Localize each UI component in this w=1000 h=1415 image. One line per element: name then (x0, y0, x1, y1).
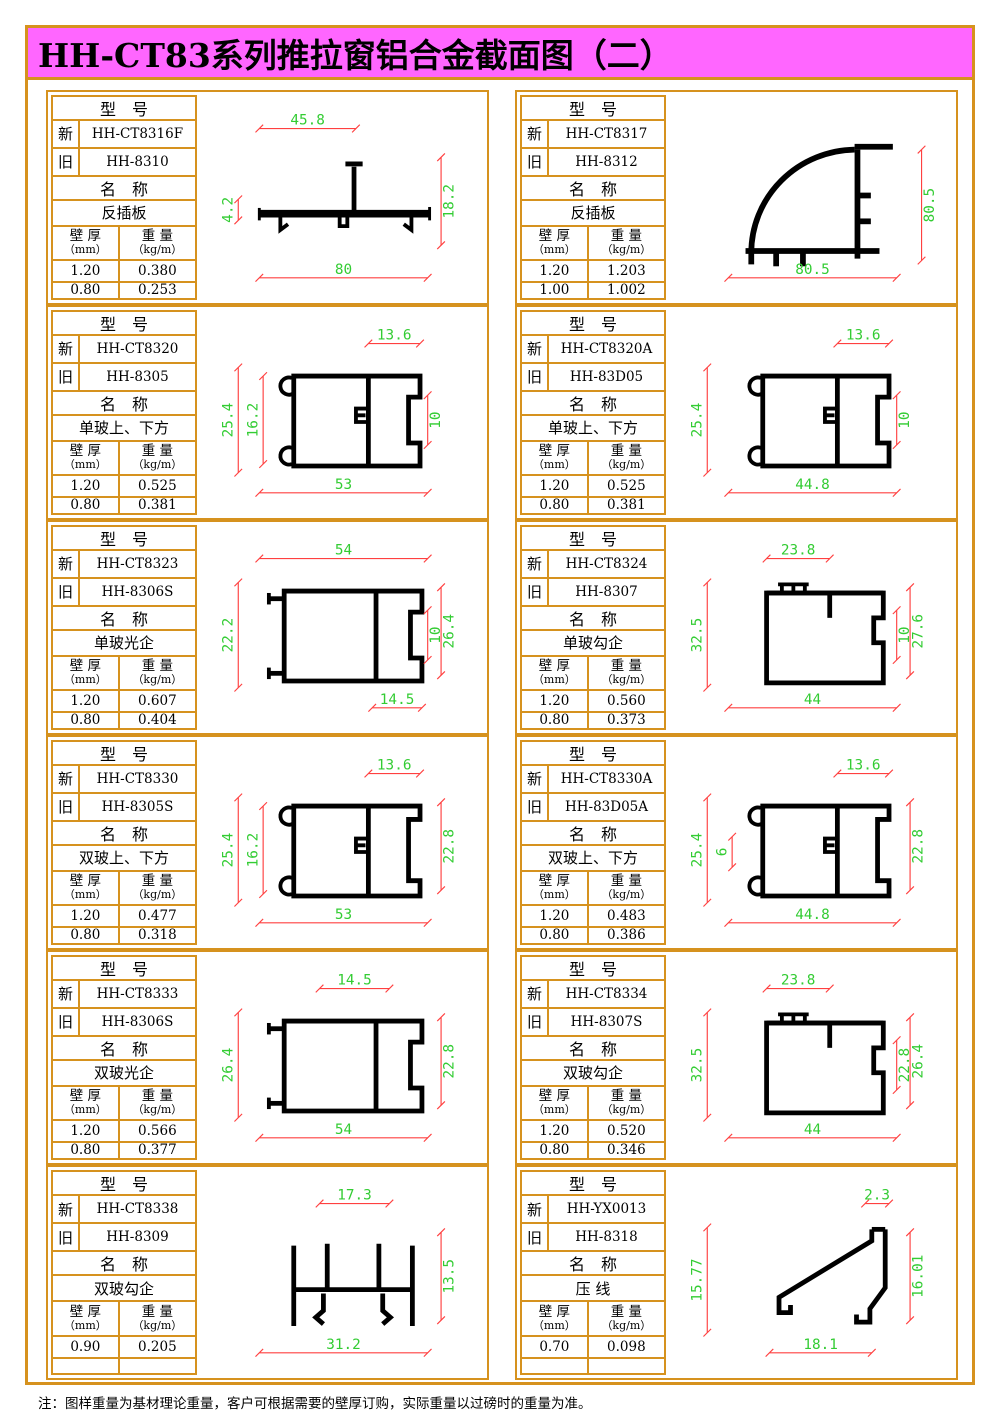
weight-header: 重 量 （kg/m） (120, 872, 195, 905)
weight-unit: （kg/m） (601, 674, 651, 686)
svg-text:25.4: 25.4 (221, 403, 237, 438)
spec-table: 型 号 新 HH-CT8338 旧 HH-8309 名 称 双玻勾企 壁 厚 （… (51, 1170, 197, 1375)
profile-name: 单玻光企 (94, 632, 154, 653)
thickness-header: 壁 厚 （mm） (53, 657, 120, 690)
thickness-value-1: 1.20 (522, 691, 589, 711)
old-label: 旧 (53, 1009, 80, 1035)
model-new: HH-CT8338 (80, 1201, 195, 1217)
weight-header: 重 量 （kg/m） (120, 1087, 195, 1120)
spec-table: 型 号 新 HH-CT8333 旧 HH-8306S 名 称 双玻光企 壁 厚 … (51, 955, 197, 1160)
profile-name: 反插板 (101, 202, 146, 223)
model-header-label: 型 号 (569, 526, 617, 550)
profile-drawing: 2.315.7716.0118.1 (669, 1167, 956, 1374)
svg-text:31.2: 31.2 (326, 1337, 361, 1353)
svg-text:16.2: 16.2 (245, 403, 261, 438)
model-old: HH-8306S (80, 1014, 195, 1030)
model-header-label: 型 号 (569, 311, 617, 335)
footer-note: 注：图样重量为基材理论重量，客户可根据需要的壁厚订购，实际重量以过磅时的重量为准… (38, 1392, 592, 1412)
thickness-unit: （mm） (533, 674, 576, 686)
weight-label: 重 量 (611, 874, 642, 889)
profile-cell: 型 号 新 HH-CT8338 旧 HH-8309 名 称 双玻勾企 壁 厚 （… (46, 1165, 489, 1380)
svg-text:14.5: 14.5 (380, 692, 415, 708)
weight-unit: （kg/m） (601, 1104, 651, 1116)
weight-value-1: 0.525 (120, 476, 195, 496)
model-new: HH-CT8320A (549, 341, 664, 357)
svg-text:16.01: 16.01 (911, 1255, 927, 1298)
name-header-label: 名 称 (569, 606, 617, 630)
model-old: HH-8310 (80, 154, 195, 170)
thickness-unit: （mm） (533, 889, 576, 901)
thickness-value-2 (53, 1359, 120, 1373)
weight-unit: （kg/m） (601, 244, 651, 256)
model-header-label: 型 号 (100, 526, 148, 550)
thickness-label: 壁 厚 (70, 444, 101, 459)
svg-text:26.4: 26.4 (442, 614, 458, 649)
weight-unit: （kg/m） (132, 889, 182, 901)
new-label: 新 (522, 336, 549, 362)
weight-value-2: 0.404 (120, 713, 195, 728)
new-label: 新 (53, 336, 80, 362)
thickness-header: 壁 厚 （mm） (53, 1087, 120, 1120)
name-header-label: 名 称 (569, 1036, 617, 1060)
profile-drawing: 80.580.5 (669, 92, 956, 299)
model-old: HH-8318 (549, 1229, 664, 1245)
model-old: HH-83D05A (549, 799, 664, 815)
old-label: 旧 (53, 1224, 80, 1250)
page-frame: HH-CT83系列推拉窗铝合金截面图（二） 型 号 新 HH-CT8316F 旧… (25, 25, 975, 1385)
weight-value-2: 0.373 (589, 713, 664, 728)
svg-text:23.8: 23.8 (781, 543, 816, 559)
weight-header: 重 量 （kg/m） (589, 1302, 664, 1335)
thickness-unit: （mm） (64, 889, 107, 901)
svg-text:13.6: 13.6 (846, 328, 881, 344)
profile-name: 双玻光企 (94, 1062, 154, 1083)
spec-table: 型 号 新 HH-CT8317 旧 HH-8312 名 称 反插板 壁 厚 （m… (520, 95, 666, 300)
old-label: 旧 (522, 579, 549, 605)
svg-text:22.8: 22.8 (442, 829, 458, 864)
weight-label: 重 量 (611, 229, 642, 244)
spec-table: 型 号 新 HH-YX0013 旧 HH-8318 名 称 压 线 壁 厚 （m… (520, 1170, 666, 1375)
old-label: 旧 (522, 1224, 549, 1250)
weight-unit: （kg/m） (132, 674, 182, 686)
model-new: HH-CT8320 (80, 341, 195, 357)
weight-value-1: 0.520 (589, 1121, 664, 1141)
thickness-value-1: 0.90 (53, 1337, 120, 1357)
thickness-label: 壁 厚 (70, 229, 101, 244)
profile-name: 单玻上、下方 (548, 417, 638, 438)
weight-header: 重 量 （kg/m） (589, 1087, 664, 1120)
old-label: 旧 (522, 1009, 549, 1035)
model-new: HH-CT8333 (80, 986, 195, 1002)
svg-text:27.6: 27.6 (911, 614, 927, 649)
thickness-label: 壁 厚 (539, 444, 570, 459)
profile-cell: 型 号 新 HH-CT8317 旧 HH-8312 名 称 反插板 壁 厚 （m… (515, 90, 958, 305)
weight-value-2: 1.002 (589, 283, 664, 298)
spec-table: 型 号 新 HH-CT8330 旧 HH-8305S 名 称 双玻上、下方 壁 … (51, 740, 197, 945)
svg-text:80.5: 80.5 (922, 188, 938, 223)
model-header-label: 型 号 (100, 956, 148, 980)
svg-text:16.2: 16.2 (245, 833, 261, 868)
weight-value-1: 0.560 (589, 691, 664, 711)
model-header-label: 型 号 (569, 956, 617, 980)
profile-cell: 型 号 新 HH-YX0013 旧 HH-8318 名 称 压 线 壁 厚 （m… (515, 1165, 958, 1380)
thickness-header: 壁 厚 （mm） (522, 1302, 589, 1335)
thickness-value-1: 1.20 (53, 261, 120, 281)
profile-cell: 型 号 新 HH-CT8330 旧 HH-8305S 名 称 双玻上、下方 壁 … (46, 735, 489, 950)
new-label: 新 (53, 551, 80, 577)
weight-value-1: 0.525 (589, 476, 664, 496)
new-label: 新 (53, 766, 80, 792)
thickness-value-1: 1.20 (522, 476, 589, 496)
weight-header: 重 量 （kg/m） (120, 657, 195, 690)
thickness-unit: （mm） (533, 244, 576, 256)
svg-text:6: 6 (714, 848, 730, 857)
svg-text:13.6: 13.6 (377, 328, 412, 344)
thickness-label: 壁 厚 (539, 659, 570, 674)
model-header-label: 型 号 (569, 741, 617, 765)
svg-text:10: 10 (428, 411, 444, 428)
svg-text:15.77: 15.77 (690, 1258, 706, 1301)
weight-value-1: 0.477 (120, 906, 195, 926)
weight-value-2: 0.386 (589, 928, 664, 943)
new-label: 新 (53, 121, 80, 147)
svg-text:44.8: 44.8 (795, 477, 830, 493)
weight-header: 重 量 （kg/m） (120, 1302, 195, 1335)
thickness-label: 壁 厚 (539, 874, 570, 889)
thickness-value-2: 0.80 (522, 1143, 589, 1158)
old-label: 旧 (522, 364, 549, 390)
weight-value-2 (120, 1359, 195, 1373)
weight-unit: （kg/m） (132, 1104, 182, 1116)
thickness-header: 壁 厚 （mm） (522, 442, 589, 475)
weight-unit: （kg/m） (601, 889, 651, 901)
model-old: HH-8306S (80, 584, 195, 600)
thickness-value-1: 1.20 (522, 261, 589, 281)
new-label: 新 (522, 766, 549, 792)
svg-text:14.5: 14.5 (337, 973, 372, 989)
profile-name: 反插板 (570, 202, 615, 223)
svg-text:44.8: 44.8 (795, 907, 830, 923)
model-header-label: 型 号 (100, 741, 148, 765)
new-label: 新 (522, 1196, 549, 1222)
profile-drawing: 13.625.41044.8 (669, 307, 956, 514)
profile-cell: 型 号 新 HH-CT8334 旧 HH-8307S 名 称 双玻勾企 壁 厚 … (515, 950, 958, 1165)
model-new: HH-CT8330 (80, 771, 195, 787)
profile-name: 单玻上、下方 (79, 417, 169, 438)
weight-label: 重 量 (611, 1305, 642, 1320)
profile-drawing: 13.625.4622.844.8 (669, 737, 956, 944)
profile-drawing: 13.625.416.222.853 (200, 737, 487, 944)
model-header-label: 型 号 (100, 311, 148, 335)
thickness-value-1: 1.20 (522, 906, 589, 926)
model-new: HH-CT8330A (549, 771, 664, 787)
model-header-label: 型 号 (569, 96, 617, 120)
new-label: 新 (522, 981, 549, 1007)
weight-header: 重 量 （kg/m） (120, 227, 195, 260)
profile-name: 单玻勾企 (563, 632, 623, 653)
svg-text:25.4: 25.4 (690, 833, 706, 868)
thickness-header: 壁 厚 （mm） (53, 1302, 120, 1335)
name-header-label: 名 称 (100, 606, 148, 630)
weight-unit: （kg/m） (601, 459, 651, 471)
svg-text:25.4: 25.4 (221, 833, 237, 868)
svg-text:13.6: 13.6 (377, 758, 412, 774)
model-old: HH-8307 (549, 584, 664, 600)
thickness-value-2: 0.80 (53, 713, 120, 728)
model-new: HH-CT8316F (80, 126, 195, 142)
name-header-label: 名 称 (100, 1251, 148, 1275)
thickness-header: 壁 厚 （mm） (522, 657, 589, 690)
name-header-label: 名 称 (100, 1036, 148, 1060)
model-old: HH-8312 (549, 154, 664, 170)
weight-value-1: 0.483 (589, 906, 664, 926)
weight-header: 重 量 （kg/m） (120, 442, 195, 475)
weight-value-2: 0.381 (120, 498, 195, 513)
model-old: HH-8309 (80, 1229, 195, 1245)
thickness-header: 壁 厚 （mm） (53, 872, 120, 905)
thickness-label: 壁 厚 (539, 1089, 570, 1104)
profile-name: 双玻勾企 (563, 1062, 623, 1083)
thickness-label: 壁 厚 (70, 1089, 101, 1104)
old-label: 旧 (522, 794, 549, 820)
svg-text:32.5: 32.5 (690, 1048, 706, 1083)
name-header-label: 名 称 (100, 821, 148, 845)
svg-text:13.5: 13.5 (442, 1259, 458, 1294)
weight-value-2: 0.377 (120, 1143, 195, 1158)
svg-text:44: 44 (804, 1122, 821, 1138)
thickness-value-2: 0.80 (522, 498, 589, 513)
profile-drawing: 14.526.422.854 (200, 952, 487, 1159)
profile-name: 双玻勾企 (94, 1278, 154, 1299)
profile-cell: 型 号 新 HH-CT8324 旧 HH-8307 名 称 单玻勾企 壁 厚 （… (515, 520, 958, 735)
svg-text:22.8: 22.8 (911, 829, 927, 864)
model-new: HH-YX0013 (549, 1201, 664, 1217)
model-old: HH-83D05 (549, 369, 664, 385)
thickness-value-2: 0.80 (53, 283, 120, 298)
svg-text:10: 10 (897, 411, 913, 428)
page-title-bar: HH-CT83系列推拉窗铝合金截面图（二） (28, 28, 972, 80)
svg-text:23.8: 23.8 (781, 973, 816, 989)
thickness-value-2 (522, 1359, 589, 1373)
weight-value-1: 0.566 (120, 1121, 195, 1141)
svg-text:22.2: 22.2 (221, 618, 237, 653)
thickness-unit: （mm） (64, 1104, 107, 1116)
spec-table: 型 号 新 HH-CT8316F 旧 HH-8310 名 称 反插板 壁 厚 （… (51, 95, 197, 300)
thickness-value-1: 1.20 (53, 691, 120, 711)
weight-label: 重 量 (142, 229, 173, 244)
svg-text:54: 54 (335, 543, 352, 559)
weight-unit: （kg/m） (132, 1320, 182, 1332)
profile-drawing: 13.625.416.21053 (200, 307, 487, 514)
weight-value-2: 0.346 (589, 1143, 664, 1158)
spec-table: 型 号 新 HH-CT8320 旧 HH-8305 名 称 单玻上、下方 壁 厚… (51, 310, 197, 515)
old-label: 旧 (53, 364, 80, 390)
weight-value-1: 0.380 (120, 261, 195, 281)
weight-label: 重 量 (142, 444, 173, 459)
thickness-label: 壁 厚 (70, 1305, 101, 1320)
old-label: 旧 (53, 149, 80, 175)
model-old: HH-8307S (549, 1014, 664, 1030)
thickness-value-2: 0.80 (53, 1143, 120, 1158)
model-new: HH-CT8324 (549, 556, 664, 572)
spec-table: 型 号 新 HH-CT8334 旧 HH-8307S 名 称 双玻勾企 壁 厚 … (520, 955, 666, 1160)
name-header-label: 名 称 (569, 821, 617, 845)
profile-drawing: 17.313.531.2 (200, 1167, 487, 1374)
thickness-value-2: 0.80 (53, 498, 120, 513)
model-new: HH-CT8317 (549, 126, 664, 142)
svg-text:44: 44 (804, 692, 821, 708)
svg-text:18.1: 18.1 (803, 1337, 838, 1353)
weight-unit: （kg/m） (601, 1320, 651, 1332)
model-new: HH-CT8334 (549, 986, 664, 1002)
svg-text:25.4: 25.4 (690, 403, 706, 438)
weight-value-1: 0.607 (120, 691, 195, 711)
spec-table: 型 号 新 HH-CT8323 旧 HH-8306S 名 称 单玻光企 壁 厚 … (51, 525, 197, 730)
thickness-unit: （mm） (64, 674, 107, 686)
thickness-unit: （mm） (533, 459, 576, 471)
profile-drawing: 23.832.51027.644 (669, 522, 956, 729)
spec-table: 型 号 新 HH-CT8324 旧 HH-8307 名 称 单玻勾企 壁 厚 （… (520, 525, 666, 730)
thickness-unit: （mm） (533, 1320, 576, 1332)
profile-cell: 型 号 新 HH-CT8333 旧 HH-8306S 名 称 双玻光企 壁 厚 … (46, 950, 489, 1165)
svg-text:80.5: 80.5 (795, 262, 830, 278)
thickness-value-1: 1.20 (522, 1121, 589, 1141)
thickness-value-1: 1.20 (53, 906, 120, 926)
svg-text:53: 53 (335, 477, 352, 493)
thickness-value-2: 1.00 (522, 283, 589, 298)
profile-cell: 型 号 新 HH-CT8316F 旧 HH-8310 名 称 反插板 壁 厚 （… (46, 90, 489, 305)
weight-header: 重 量 （kg/m） (589, 227, 664, 260)
thickness-value-1: 0.70 (522, 1337, 589, 1357)
thickness-header: 壁 厚 （mm） (522, 872, 589, 905)
thickness-value-2: 0.80 (53, 928, 120, 943)
thickness-label: 壁 厚 (70, 874, 101, 889)
weight-value-1: 0.098 (589, 1337, 664, 1357)
weight-label: 重 量 (611, 1089, 642, 1104)
thickness-label: 壁 厚 (539, 1305, 570, 1320)
name-header-label: 名 称 (569, 1251, 617, 1275)
weight-label: 重 量 (142, 1089, 173, 1104)
thickness-unit: （mm） (64, 244, 107, 256)
profile-cell: 型 号 新 HH-CT8330A 旧 HH-83D05A 名 称 双玻上、下方 … (515, 735, 958, 950)
weight-unit: （kg/m） (132, 459, 182, 471)
thickness-value-2: 0.80 (522, 928, 589, 943)
weight-value-2: 0.253 (120, 283, 195, 298)
new-label: 新 (53, 1196, 80, 1222)
name-header-label: 名 称 (100, 391, 148, 415)
new-label: 新 (53, 981, 80, 1007)
svg-text:13.6: 13.6 (846, 758, 881, 774)
model-header-label: 型 号 (100, 96, 148, 120)
thickness-unit: （mm） (533, 1104, 576, 1116)
profile-drawing: 5422.21026.414.5 (200, 522, 487, 729)
svg-text:45.8: 45.8 (290, 113, 325, 129)
weight-label: 重 量 (142, 874, 173, 889)
old-label: 旧 (522, 149, 549, 175)
svg-text:26.4: 26.4 (911, 1044, 927, 1079)
name-header-label: 名 称 (569, 176, 617, 200)
svg-text:26.4: 26.4 (221, 1048, 237, 1083)
profile-grid: 型 号 新 HH-CT8316F 旧 HH-8310 名 称 反插板 壁 厚 （… (46, 90, 958, 1380)
thickness-unit: （mm） (64, 1320, 107, 1332)
thickness-label: 壁 厚 (70, 659, 101, 674)
profile-name: 双玻上、下方 (79, 847, 169, 868)
thickness-label: 壁 厚 (539, 229, 570, 244)
model-header-label: 型 号 (100, 1171, 148, 1195)
thickness-value-1: 1.20 (53, 476, 120, 496)
page-title: HH-CT83系列推拉窗铝合金截面图（二） (38, 29, 673, 77)
profile-name: 双玻上、下方 (548, 847, 638, 868)
weight-label: 重 量 (611, 659, 642, 674)
svg-text:22.8: 22.8 (442, 1044, 458, 1079)
profile-drawing: 23.832.522.826.444 (669, 952, 956, 1159)
profile-cell: 型 号 新 HH-CT8320 旧 HH-8305 名 称 单玻上、下方 壁 厚… (46, 305, 489, 520)
weight-header: 重 量 （kg/m） (589, 442, 664, 475)
svg-text:80: 80 (335, 262, 352, 278)
spec-table: 型 号 新 HH-CT8320A 旧 HH-83D05 名 称 单玻上、下方 壁… (520, 310, 666, 515)
svg-text:18.2: 18.2 (442, 184, 458, 219)
new-label: 新 (522, 551, 549, 577)
svg-text:17.3: 17.3 (337, 1188, 372, 1204)
thickness-value-1: 1.20 (53, 1121, 120, 1141)
model-old: HH-8305 (80, 369, 195, 385)
profile-cell: 型 号 新 HH-CT8320A 旧 HH-83D05 名 称 单玻上、下方 壁… (515, 305, 958, 520)
weight-unit: （kg/m） (132, 244, 182, 256)
weight-value-2 (589, 1359, 664, 1373)
model-new: HH-CT8323 (80, 556, 195, 572)
old-label: 旧 (53, 794, 80, 820)
svg-text:2.3: 2.3 (864, 1188, 890, 1204)
weight-value-1: 0.205 (120, 1337, 195, 1357)
name-header-label: 名 称 (100, 176, 148, 200)
new-label: 新 (522, 121, 549, 147)
weight-label: 重 量 (142, 1305, 173, 1320)
svg-text:53: 53 (335, 907, 352, 923)
profile-drawing: 45.84.218.280 (200, 92, 487, 299)
spec-table: 型 号 新 HH-CT8330A 旧 HH-83D05A 名 称 双玻上、下方 … (520, 740, 666, 945)
svg-text:4.2: 4.2 (221, 197, 237, 223)
weight-value-2: 0.318 (120, 928, 195, 943)
thickness-unit: （mm） (64, 459, 107, 471)
model-old: HH-8305S (80, 799, 195, 815)
profile-name: 压 线 (576, 1278, 611, 1299)
weight-header: 重 量 （kg/m） (589, 657, 664, 690)
svg-text:54: 54 (335, 1122, 352, 1138)
profile-cell: 型 号 新 HH-CT8323 旧 HH-8306S 名 称 单玻光企 壁 厚 … (46, 520, 489, 735)
thickness-header: 壁 厚 （mm） (522, 1087, 589, 1120)
weight-header: 重 量 （kg/m） (589, 872, 664, 905)
weight-value-1: 1.203 (589, 261, 664, 281)
thickness-value-2: 0.80 (522, 713, 589, 728)
weight-label: 重 量 (611, 444, 642, 459)
svg-text:32.5: 32.5 (690, 618, 706, 653)
weight-value-2: 0.381 (589, 498, 664, 513)
thickness-header: 壁 厚 （mm） (522, 227, 589, 260)
weight-label: 重 量 (142, 659, 173, 674)
old-label: 旧 (53, 579, 80, 605)
thickness-header: 壁 厚 （mm） (53, 227, 120, 260)
thickness-header: 壁 厚 （mm） (53, 442, 120, 475)
name-header-label: 名 称 (569, 391, 617, 415)
model-header-label: 型 号 (569, 1171, 617, 1195)
